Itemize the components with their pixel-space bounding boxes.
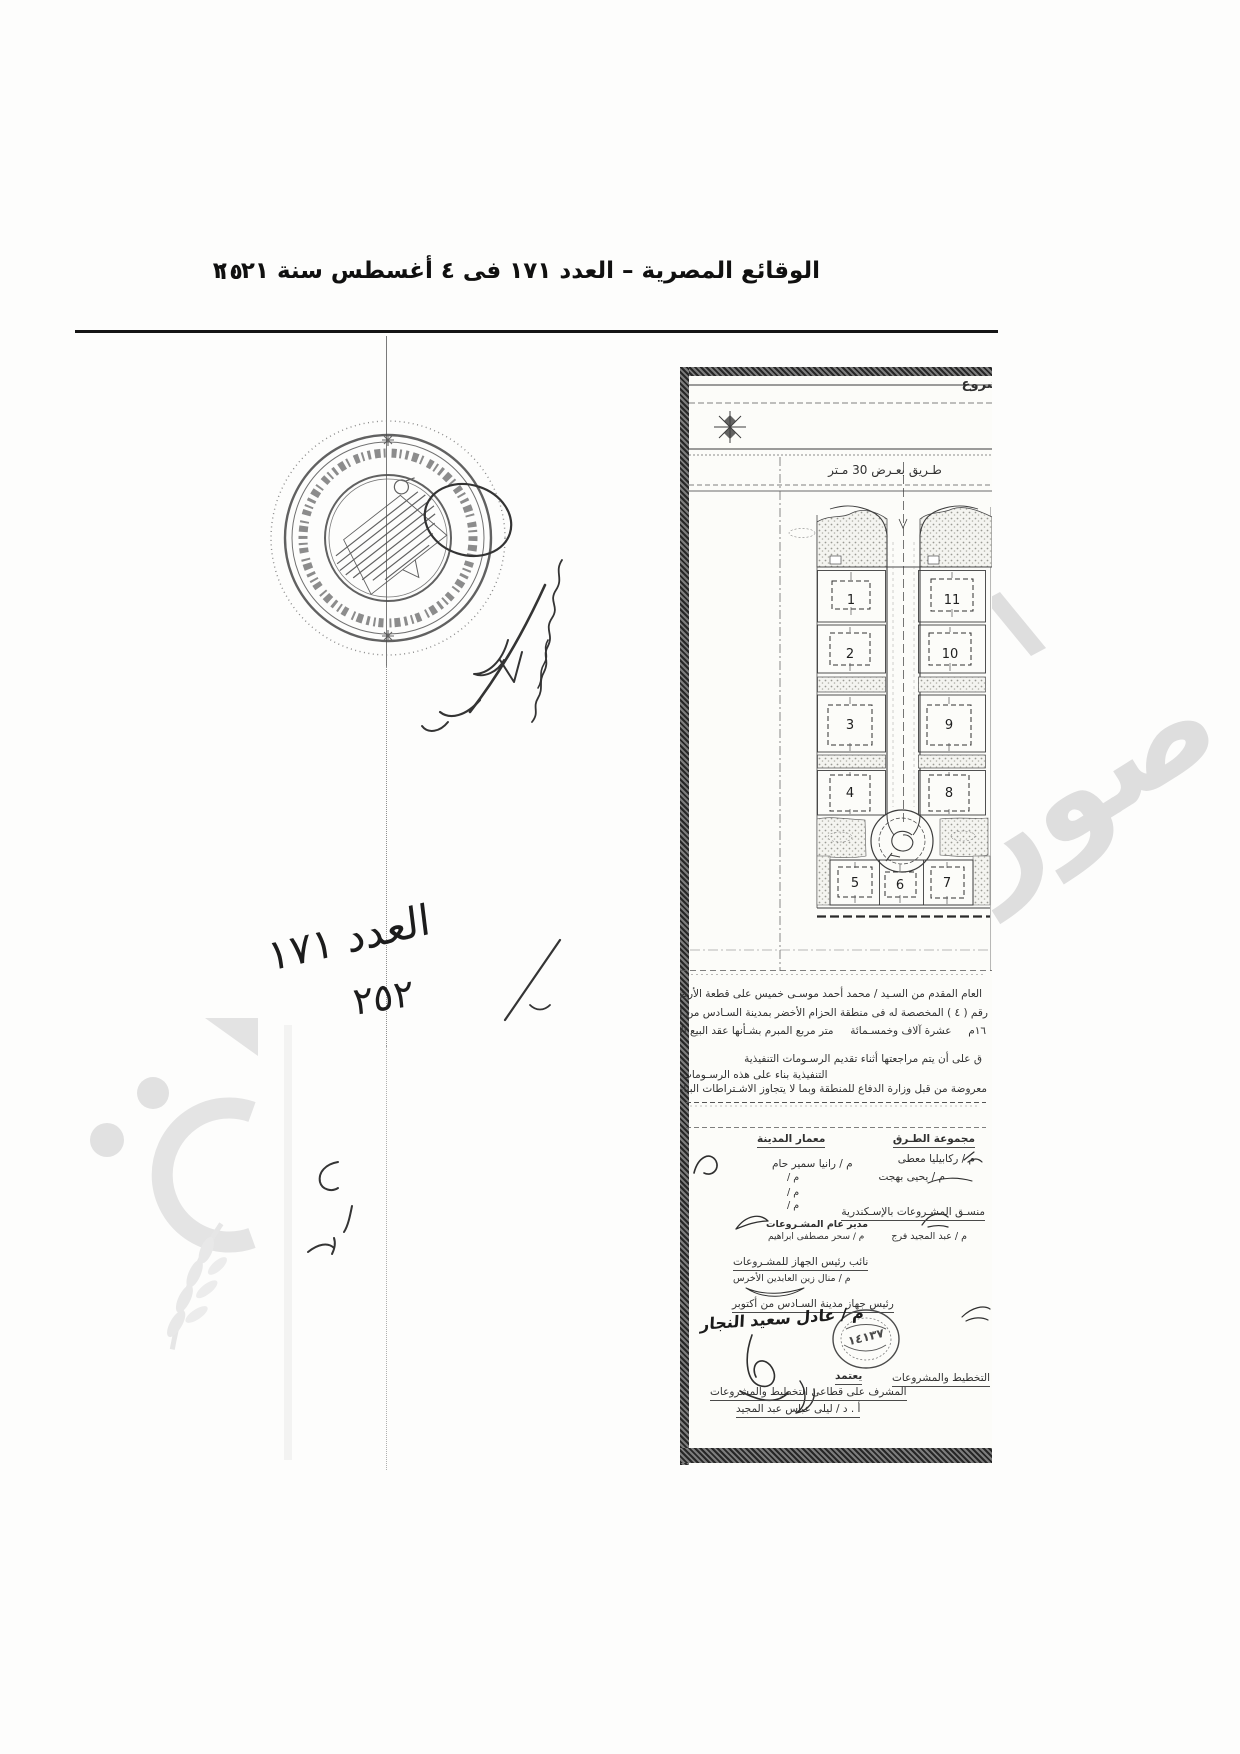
page-number: ١٥ [216,260,243,285]
approval-title: المشرف على قطاعى التخطيط والمشروعات [710,1386,907,1401]
north-compass-icon [714,411,746,443]
city-architect-title: معمار المدينة [757,1133,825,1148]
approval-name: أ . د / ليلى عباس عبد المجيد [736,1403,860,1418]
plot-10-label: 10 [942,647,959,662]
plot-1-label: 1 [847,593,855,608]
projects-gm-title: مدير عام المشـروعات [766,1219,868,1231]
city-architect-slot: م / [787,1187,799,1199]
plot-9-label: 9 [945,718,953,733]
paragraph-line: ق على أن يتم مراجعتها أثناء تقديم الرسـو… [744,1053,982,1066]
paragraph-line: معروضة من قبل وزارة الدفاع للمنطقة وبما … [680,1083,987,1096]
plot-2-label: 2 [846,647,854,662]
city-architect-member: م / رانيا سمير حام [772,1158,853,1171]
watermark-diagonal-band [205,1018,258,1056]
paragraph-line: التنفيذية بناء على هذه الرسـومات [682,1069,828,1082]
city-architect-slot: م / [787,1172,799,1184]
watermark-calligraphy-stroke [985,592,1046,656]
deputy-head-title: نائب رئيس الجهاز للمشـروعات [733,1256,868,1271]
alex-coordinator-name: م / عبد المجيد فرج [891,1231,967,1243]
plot-4-label: 4 [846,786,854,801]
projects-gm-name: م / سحر مصطفى ابراهيم [768,1232,864,1243]
city-architect-slot: م / [787,1200,799,1212]
green-strip [919,677,986,692]
plot-11-label: 11 [944,593,961,608]
plot-3-label: 3 [846,718,854,733]
approval-word: يعتمد [835,1370,862,1385]
watermark-dot [90,1123,124,1157]
plan-title-fragment: مشروع [962,377,992,393]
plot-6-label: 6 [896,878,904,893]
page-title: الوقائع المصرية – العدد ١٧١ فى ٤ أغسطس س… [360,258,820,284]
plot-7-label: 7 [943,876,951,891]
gazette-scanned-page: صورة الوقائع المصرية – العدد ١٧١ فى ٤ أغ… [0,0,1240,1754]
header-rule [75,330,998,333]
roads-group-member: م / ركابيليا معطى [898,1153,975,1166]
scan-fold-line [386,1046,387,1470]
green-strip [919,755,986,768]
scan-fold-shadow [284,1025,292,1460]
watermark-crescent-arc [162,1108,252,1242]
green-strip [818,677,886,692]
roads-group-member: م / يحيى بهجت [878,1171,945,1184]
roads-group-title: مجموعة الطـرق [893,1133,975,1148]
site-plan-inset: 1 2 3 4 5 6 7 8 9 10 11 [680,367,992,1465]
road-width-label: طـريق بعـرض 30 مـتر [800,463,970,478]
watermark-dot [137,1077,169,1109]
green-strip [818,755,886,768]
deputy-head-name: م / منال زين العابدين الأخرس [733,1273,851,1285]
paragraph-line: ١٦م عشرة آلاف وخمسـمائة متر مربع المبرم … [680,1025,986,1038]
landscape-area [817,511,887,567]
paragraph-line: رقم ( ٤ ) المخصصة له فى منطقة الحزام الأ… [680,1007,988,1020]
plot-8-label: 8 [945,786,953,801]
landscape-area [817,818,866,858]
scan-fold-line [386,336,387,666]
plot-5-label: 5 [851,876,859,891]
landscape-area [940,818,988,857]
planning-dept-fragment: التخطيط والمشروعات [892,1372,990,1387]
paragraph-line: العام المقدم من السـيد / محمد أحمد موسـى… [680,988,982,1001]
scan-fold-line [386,666,387,1046]
